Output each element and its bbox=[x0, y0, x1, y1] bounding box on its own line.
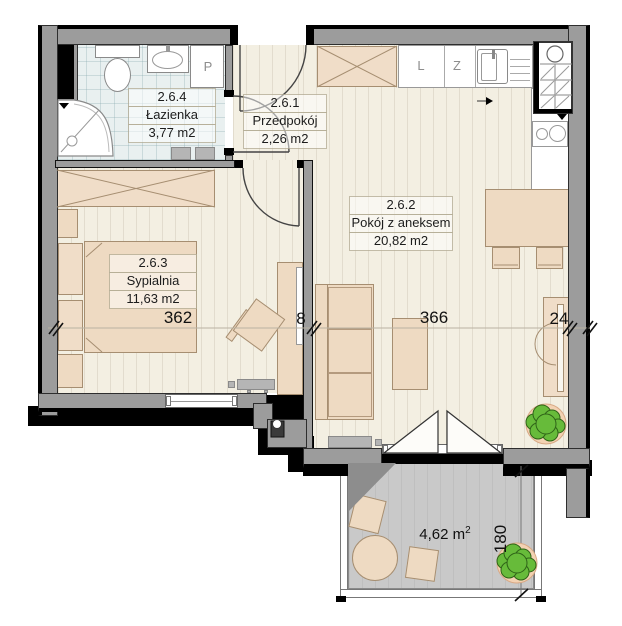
window-frame-end bbox=[497, 445, 502, 453]
exterior-wall-left bbox=[38, 25, 58, 416]
nightstand bbox=[57, 209, 78, 238]
room-area: 2,26 m2 bbox=[243, 130, 327, 149]
kitchen-sink bbox=[477, 49, 508, 84]
entrance-jamb bbox=[306, 25, 314, 45]
dimension-living-width: 366 bbox=[412, 309, 456, 327]
room-name: Przedpokój bbox=[243, 112, 327, 131]
living-room-label: 2.6.2 Pokój z aneksem 20,82 m2 bbox=[349, 197, 453, 251]
dining-chair bbox=[492, 247, 520, 269]
washing-machine: P bbox=[190, 45, 224, 88]
living-bottom-wall-right bbox=[503, 448, 590, 468]
sofa-cushion bbox=[328, 287, 372, 329]
window-glass-line bbox=[166, 401, 237, 402]
room-name: Sypialnia bbox=[109, 272, 197, 291]
sink-drainer-lines bbox=[510, 53, 530, 81]
burner bbox=[536, 128, 548, 140]
room-number: 2.6.3 bbox=[109, 254, 197, 273]
bathroom-label: 2.6.4 Łazienka 3,77 m2 bbox=[128, 89, 216, 143]
sofa-cushion bbox=[328, 329, 372, 373]
room-name: Łazienka bbox=[128, 106, 216, 125]
floor-plan: L Z P bbox=[0, 0, 622, 626]
counter-divider bbox=[475, 46, 476, 87]
dimension-bedroom-width: 362 bbox=[156, 309, 200, 327]
balcony-railing-left bbox=[340, 463, 348, 597]
burner bbox=[549, 125, 566, 142]
bathroom-wall bbox=[225, 45, 233, 95]
vanity-faucet bbox=[166, 45, 170, 52]
dimension-balcony-depth: 180 bbox=[492, 521, 510, 557]
room-area: 20,82 m2 bbox=[349, 232, 453, 251]
balcony-area-value: 4,62 m bbox=[419, 526, 465, 543]
door-jamb bbox=[224, 90, 234, 97]
towel-radiator bbox=[195, 147, 215, 160]
railing-corner-mark bbox=[536, 596, 546, 602]
balcony-table bbox=[352, 535, 398, 581]
door-jamb bbox=[224, 148, 234, 155]
pillow bbox=[58, 243, 83, 295]
bathroom-door-gap bbox=[225, 95, 233, 150]
toilet-cistern bbox=[95, 45, 140, 58]
room-area: 3,77 m2 bbox=[128, 124, 216, 143]
balcony-chair bbox=[405, 546, 439, 582]
balcony-area-sup: 2 bbox=[465, 525, 471, 536]
bathroom-vanity bbox=[147, 45, 189, 73]
balcony-area-label: 4,62 m2 bbox=[403, 522, 487, 544]
room-number: 2.6.2 bbox=[349, 196, 453, 215]
entrance-jamb bbox=[230, 25, 238, 45]
dimension-partition-wall: 8 bbox=[290, 310, 312, 328]
dining-chair bbox=[536, 247, 563, 269]
dishwasher-label: Z bbox=[448, 58, 466, 74]
counter-divider bbox=[444, 46, 445, 87]
fridge-label: L bbox=[412, 58, 430, 74]
toilet-bowl bbox=[104, 58, 131, 92]
window-frame-end bbox=[383, 445, 388, 453]
sink-faucet bbox=[492, 49, 495, 59]
living-radiator bbox=[328, 436, 372, 448]
balcony-railing-right bbox=[534, 463, 542, 597]
towel-radiator bbox=[171, 147, 191, 160]
washing-machine-label: P bbox=[199, 59, 217, 75]
desk-item bbox=[296, 267, 303, 345]
room-name: Pokój z aneksem bbox=[349, 214, 453, 233]
window-frame-end bbox=[166, 396, 171, 406]
exterior-wall-top-right bbox=[306, 25, 590, 45]
bedroom-top-wall bbox=[55, 160, 235, 168]
room-number: 2.6.1 bbox=[243, 94, 327, 113]
dimension-right-nook: 24 bbox=[543, 310, 575, 328]
living-bottom-wall-left bbox=[303, 448, 382, 468]
balcony-door-frame bbox=[382, 444, 503, 454]
vanity-basin bbox=[152, 51, 183, 69]
bedroom-label: 2.6.3 Sypialnia 11,63 m2 bbox=[109, 255, 197, 309]
shaft-core bbox=[56, 45, 74, 99]
partition-wall bbox=[303, 160, 313, 453]
exterior-wall-top-left bbox=[38, 25, 238, 45]
bedroom-radiator bbox=[237, 379, 275, 390]
exterior-wall-right bbox=[568, 25, 590, 470]
radiator-valve bbox=[228, 381, 235, 388]
bedroom-wardrobe bbox=[57, 170, 215, 207]
hallway-closet bbox=[317, 46, 397, 87]
dining-table bbox=[485, 189, 570, 247]
hallway-label: 2.6.1 Przedpokój 2,26 m2 bbox=[243, 95, 327, 149]
nightstand bbox=[57, 354, 83, 388]
room-number: 2.6.4 bbox=[128, 88, 216, 107]
bedroom-window bbox=[165, 394, 238, 408]
sofa-cushion bbox=[328, 373, 372, 417]
cooktop bbox=[532, 121, 568, 147]
balcony-side-wall bbox=[566, 468, 590, 518]
sofa bbox=[315, 284, 374, 420]
step-wall bbox=[267, 419, 307, 448]
room-area: 11,63 m2 bbox=[109, 290, 197, 309]
pillow bbox=[58, 300, 83, 351]
railing-corner-mark bbox=[336, 596, 346, 602]
window-frame-end bbox=[232, 396, 237, 406]
coffee-table bbox=[392, 318, 428, 390]
radiator-valve bbox=[375, 439, 382, 446]
door-jamb bbox=[235, 160, 243, 168]
balcony-railing-bottom bbox=[340, 589, 542, 598]
sofa-back bbox=[316, 285, 328, 419]
